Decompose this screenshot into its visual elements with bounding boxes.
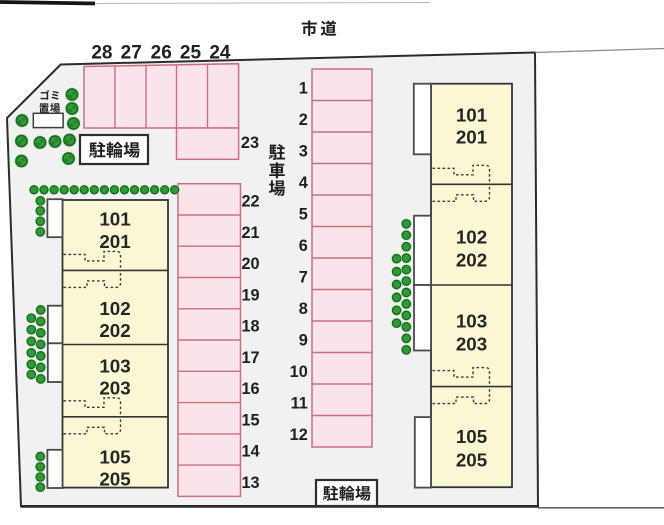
svg-text:103: 103 [456,311,487,332]
svg-text:2: 2 [299,111,308,129]
svg-text:6: 6 [299,237,308,255]
svg-text:11: 11 [291,395,308,413]
svg-text:28: 28 [91,42,112,63]
svg-text:202: 202 [456,249,487,270]
svg-text:9: 9 [299,332,308,350]
svg-text:105: 105 [99,446,130,467]
svg-text:103: 103 [99,356,130,377]
svg-text:16: 16 [242,380,260,398]
svg-text:202: 202 [99,320,130,341]
svg-text:23: 23 [241,134,259,152]
svg-text:7: 7 [299,269,308,287]
svg-text:102: 102 [99,298,130,319]
svg-text:17: 17 [242,349,260,367]
svg-text:105: 105 [456,426,487,447]
svg-text:201: 201 [456,127,487,148]
svg-text:24: 24 [209,42,231,63]
svg-text:26: 26 [151,42,172,63]
svg-text:10: 10 [290,363,308,381]
svg-text:101: 101 [99,209,130,230]
svg-text:203: 203 [99,377,130,398]
svg-text:22: 22 [242,193,260,211]
svg-text:14: 14 [242,443,260,461]
svg-text:27: 27 [121,42,142,63]
svg-text:1: 1 [299,80,308,98]
svg-text:20: 20 [242,255,260,273]
svg-text:3: 3 [299,143,308,161]
svg-text:4: 4 [299,174,308,192]
svg-text:101: 101 [456,105,487,126]
svg-text:15: 15 [242,411,260,429]
svg-text:18: 18 [242,318,260,336]
svg-text:21: 21 [242,224,260,242]
svg-text:203: 203 [456,334,487,355]
svg-text:205: 205 [456,449,487,470]
svg-text:201: 201 [99,231,130,252]
svg-text:5: 5 [299,206,308,224]
svg-text:205: 205 [99,468,130,489]
svg-text:25: 25 [180,42,202,63]
svg-text:19: 19 [242,286,260,304]
svg-text:13: 13 [242,474,260,492]
svg-text:102: 102 [456,227,487,248]
svg-text:12: 12 [290,426,308,444]
svg-text:8: 8 [299,300,308,318]
